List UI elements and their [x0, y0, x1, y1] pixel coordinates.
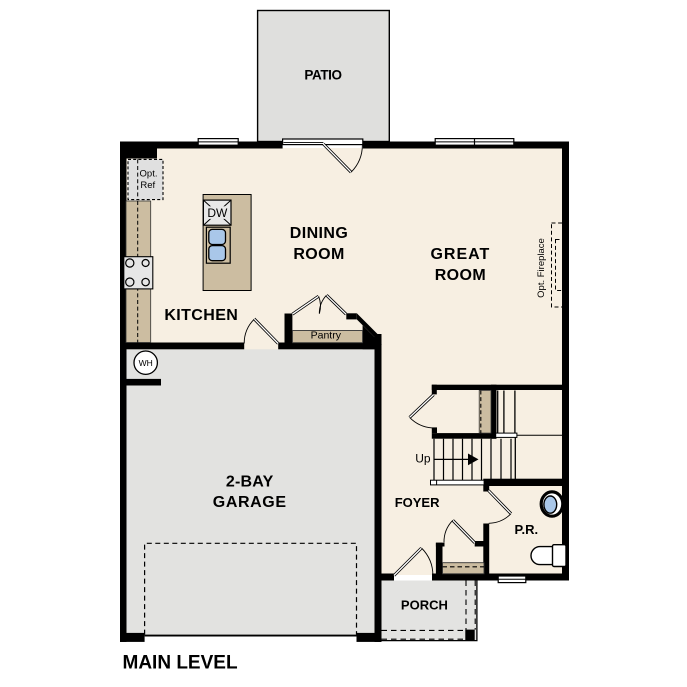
svg-text:ROOM: ROOM [293, 246, 344, 263]
svg-text:Opt. Fireplace: Opt. Fireplace [536, 238, 547, 298]
svg-text:DINING: DINING [290, 225, 348, 242]
svg-text:Opt.: Opt. [140, 168, 158, 179]
svg-text:MAIN LEVEL: MAIN LEVEL [123, 653, 238, 674]
svg-text:WH: WH [139, 358, 153, 368]
svg-text:KITCHEN: KITCHEN [164, 307, 238, 324]
svg-text:Up: Up [415, 451, 431, 465]
svg-text:PATIO: PATIO [304, 67, 341, 82]
svg-text:GARAGE: GARAGE [213, 494, 287, 511]
svg-text:DW: DW [207, 206, 228, 220]
svg-text:PORCH: PORCH [401, 598, 448, 613]
svg-text:P.R.: P.R. [514, 522, 538, 537]
svg-text:GREAT: GREAT [430, 246, 490, 263]
svg-text:ROOM: ROOM [435, 267, 486, 284]
svg-text:Ref: Ref [140, 180, 155, 191]
svg-text:Pantry: Pantry [311, 329, 342, 341]
svg-text:2-BAY: 2-BAY [226, 474, 274, 491]
svg-text:FOYER: FOYER [395, 495, 440, 510]
